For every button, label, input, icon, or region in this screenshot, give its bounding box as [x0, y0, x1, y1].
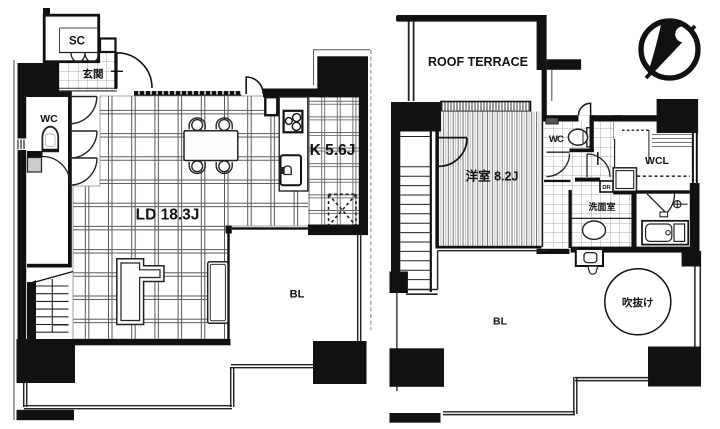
svg-text:BL: BL — [290, 289, 305, 301]
svg-text:WC: WC — [549, 134, 564, 145]
svg-text:ROOF TERRACE: ROOF TERRACE — [428, 55, 528, 69]
svg-text:DR: DR — [602, 185, 611, 191]
svg-text:LD 18.3J: LD 18.3J — [136, 207, 200, 224]
svg-text:K 5.6J: K 5.6J — [310, 142, 356, 159]
svg-text:洗面室: 洗面室 — [588, 201, 615, 212]
svg-text:WCL: WCL — [645, 155, 669, 167]
svg-text:玄関: 玄関 — [83, 68, 104, 81]
svg-text:洋室 8.2J: 洋室 8.2J — [466, 169, 519, 184]
svg-text:WC: WC — [40, 113, 58, 125]
svg-text:SC: SC — [69, 36, 85, 48]
svg-text:吹抜け: 吹抜け — [622, 296, 654, 309]
svg-text:BL: BL — [493, 316, 508, 328]
